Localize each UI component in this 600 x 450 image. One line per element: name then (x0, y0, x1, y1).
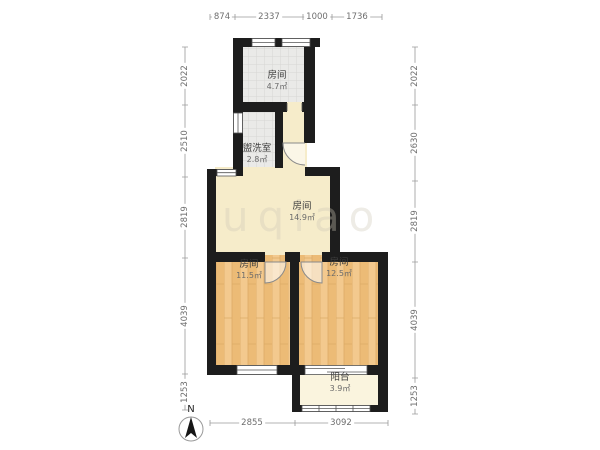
room-label-top: 房间 4.7㎡ (267, 70, 288, 92)
dimension-label: 874 (212, 12, 232, 22)
room-label-balcony: 阳台 3.9㎡ (330, 372, 351, 394)
room-label-bedroom-right: 房间 12.5㎡ (326, 257, 352, 279)
dimension-label: 2022 (410, 63, 420, 89)
floorplan-canvas (0, 0, 600, 450)
dimension-label: 1000 (304, 12, 330, 22)
dimension-label: 4039 (410, 307, 420, 333)
dimension-label: 2022 (180, 63, 190, 89)
dimension-label: 3092 (328, 418, 354, 428)
room-label-hall: 房间 14.9㎡ (289, 201, 315, 223)
dimension-label: 1253 (410, 383, 420, 409)
dimension-label: 2819 (410, 208, 420, 234)
dimension-label: 1736 (344, 12, 370, 22)
room-label-washroom: 盥洗室 2.8㎡ (243, 143, 272, 165)
dimension-label: 2630 (410, 130, 420, 156)
dimension-label: 2510 (180, 128, 190, 154)
dimension-label: 4039 (180, 303, 190, 329)
dimension-label: 2337 (256, 12, 282, 22)
dimension-label: 1253 (180, 379, 190, 405)
room-label-bedroom-left: 房间 11.5㎡ (236, 259, 262, 281)
dimension-label: 2819 (180, 204, 190, 230)
compass-north-label: N (187, 404, 194, 415)
floor-plan: uqiao 房间 4.7㎡ 盥洗室 2.8㎡ 房间 14.9㎡ 房间 11.5㎡… (0, 0, 600, 450)
dimension-label: 2855 (239, 418, 265, 428)
compass-icon (179, 417, 203, 441)
